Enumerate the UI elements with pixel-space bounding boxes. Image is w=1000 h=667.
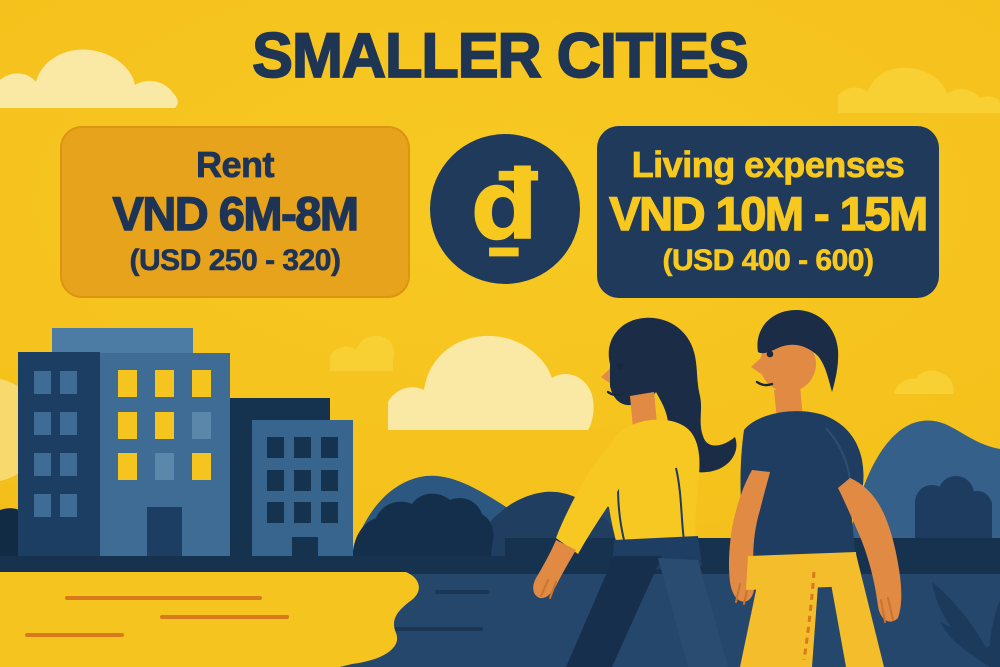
rent-card: Rent VND 6M-8M (USD 250 - 320) xyxy=(60,126,410,298)
dong-currency-badge: ₫ xyxy=(430,134,580,284)
living-expenses-card: Living expenses VND 10M - 15M (USD 400 -… xyxy=(597,126,939,298)
city-buildings xyxy=(18,328,353,563)
rent-usd-amount: (USD 250 - 320) xyxy=(130,241,341,281)
woman-eye xyxy=(617,363,624,370)
living-label: Living expenses xyxy=(632,143,905,187)
page-title: SMALLER CITIES xyxy=(15,20,985,92)
infographic-poster: SMALLER CITIES Rent VND 6M-8M (USD 250 -… xyxy=(0,0,1000,667)
man-eye xyxy=(767,351,774,358)
illustration-scene xyxy=(0,0,1000,667)
rent-label: Rent xyxy=(196,143,274,187)
shore-path xyxy=(0,572,419,667)
dong-symbol-icon: ₫ xyxy=(472,158,539,254)
living-vnd-amount: VND 10M - 15M xyxy=(609,187,926,241)
bush xyxy=(352,494,494,564)
living-usd-amount: (USD 400 - 600) xyxy=(663,241,874,281)
rent-vnd-amount: VND 6M-8M xyxy=(112,187,357,241)
